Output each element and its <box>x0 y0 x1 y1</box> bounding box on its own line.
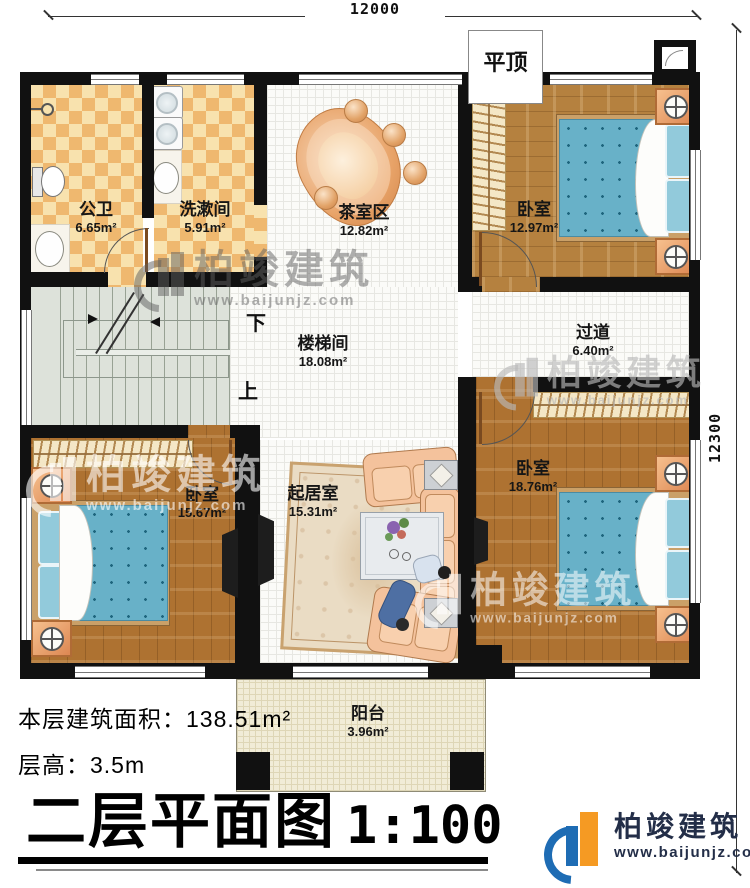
tea-stool-4 <box>314 186 338 210</box>
window-top-3 <box>299 74 462 85</box>
balcony-pillar-right <box>450 752 484 790</box>
flat-roof-box: 平顶 <box>468 30 543 104</box>
staircase <box>30 287 230 425</box>
room-label-qijushi: 起居室 15.31m² <box>288 484 339 519</box>
bed-br-blanket <box>635 492 669 606</box>
bed-tr-pillow-1 <box>665 124 692 178</box>
wall-bath-bottom-b <box>146 272 267 287</box>
bathroom-sink <box>35 231 64 267</box>
wall-lamp-icon <box>41 103 54 116</box>
window-right-1 <box>690 150 701 260</box>
company-logo-url: www.baijunjz.com <box>614 843 750 863</box>
room-label-guodao: 过道 6.40m² <box>572 323 613 358</box>
room-name: 卧室 <box>178 485 226 505</box>
dimension-tick <box>691 10 702 21</box>
balcony-pillar-left <box>236 752 270 790</box>
room-area: 18.08m² <box>298 354 349 370</box>
room-area: 15.67m² <box>178 505 226 521</box>
room-label-xishujian: 洗漱间 5.91m² <box>180 200 231 235</box>
room-name: 阳台 <box>347 704 388 724</box>
dimension-tick <box>43 10 54 21</box>
tea-stool-2 <box>382 123 406 147</box>
room-label-chashiqu: 茶室区 12.82m² <box>339 203 390 238</box>
dimension-width: 12000 <box>305 0 445 18</box>
dimension-line-right <box>736 30 737 873</box>
room-label-bedroom-bl: 卧室 15.67m² <box>178 485 226 520</box>
bed-tr-blanket <box>635 119 669 237</box>
bed-br-pillow-1 <box>665 498 692 548</box>
room-name: 过道 <box>572 323 613 343</box>
page-title: 二层平面图 <box>26 792 336 852</box>
page-scale: 1:100 <box>346 800 503 852</box>
room-name: 楼梯间 <box>298 334 349 354</box>
door-leaf-bedroom-tr <box>479 232 482 286</box>
wall-wash-tea-a <box>254 85 267 205</box>
threshold-bathroom <box>108 272 146 287</box>
wall-bedroombl-top-a <box>20 425 188 438</box>
room-area: 12.82m² <box>339 223 390 239</box>
tea-stool-3 <box>403 161 427 185</box>
side-table-1 <box>424 460 458 490</box>
room-area: 12.97m² <box>510 220 558 236</box>
room-area: 6.40m² <box>572 343 613 359</box>
room-area: 5.91m² <box>180 220 231 236</box>
window-top-1 <box>91 74 139 85</box>
wardrobe-br <box>533 392 690 418</box>
company-logo-brand: 柏竣建筑 <box>614 812 750 843</box>
wall-living-bedroombl <box>235 425 260 663</box>
tv-living <box>258 514 274 586</box>
stair-arrow-left-icon <box>150 317 160 327</box>
room-name: 公卫 <box>75 200 116 220</box>
wall-bath-mid <box>142 85 154 218</box>
room-area: 18.76m² <box>509 479 557 495</box>
wall-junction-br <box>476 645 502 663</box>
dimension-height: 12300 <box>706 388 724 488</box>
window-top-2 <box>167 74 244 85</box>
chimney-inner <box>662 47 688 69</box>
window-bottom-2 <box>515 666 650 678</box>
title-underline-thick <box>18 857 488 864</box>
threshold-bedroom-br <box>476 377 533 392</box>
bed-br <box>556 487 695 611</box>
title-underline-thin <box>36 869 488 871</box>
wall-living-bedroombr <box>458 377 476 663</box>
flat-roof-label: 平顶 <box>469 45 542 77</box>
bed-bl-blanket <box>59 505 93 621</box>
story-height-value: 3.5m <box>90 752 145 778</box>
bed-bl <box>31 500 170 626</box>
tv-bedroom-bl <box>222 528 238 598</box>
toilet-bowl <box>41 166 65 197</box>
wall-bedroombr-top <box>533 377 700 392</box>
room-label-loutijian: 楼梯间 18.08m² <box>298 334 349 369</box>
person-sitting-head <box>438 566 451 579</box>
bed-tr <box>556 114 695 242</box>
wall-bath-bottom-a <box>20 272 108 287</box>
nightstand-bl-2 <box>31 620 72 657</box>
room-label-bedroom-br: 卧室 18.76m² <box>509 459 557 494</box>
room-label-gongwei: 公卫 6.65m² <box>75 200 116 235</box>
stairs-down-label: 下 <box>246 307 266 336</box>
threshold-bedroom-bl <box>188 425 230 438</box>
company-logo: 柏竣建筑 www.baijunjz.com <box>546 812 750 876</box>
room-name: 洗漱间 <box>180 200 231 220</box>
window-left-2 <box>21 498 32 640</box>
wardrobe-tr <box>472 86 506 231</box>
window-bottom-1 <box>75 666 205 678</box>
room-name: 卧室 <box>509 459 557 479</box>
washroom-sink <box>153 162 179 194</box>
floor-area-line: 本层建筑面积：138.51m² <box>18 700 291 734</box>
floor-plan-page: 下 上 <box>0 0 750 888</box>
window-top-4 <box>550 74 652 85</box>
washing-machine-1 <box>151 86 183 119</box>
person-lying-head <box>396 618 409 631</box>
door-leaf-bedroom-br <box>479 392 482 444</box>
story-height-label: 层高： <box>18 752 90 778</box>
side-table-2 <box>424 598 458 628</box>
door-leaf-bathroom <box>145 228 148 272</box>
room-name: 起居室 <box>288 484 339 504</box>
balcony-sliding-door <box>293 666 428 678</box>
wardrobe-bl <box>33 440 193 468</box>
room-name: 茶室区 <box>339 203 390 223</box>
room-area: 3.96m² <box>347 724 388 740</box>
story-height-line: 层高：3.5m <box>18 746 145 780</box>
company-logo-icon <box>546 812 606 876</box>
window-left-1 <box>21 310 32 425</box>
wall-bedroomtr-bottom-b <box>540 277 700 292</box>
room-label-bedroom-tr: 卧室 12.97m² <box>510 200 558 235</box>
window-right-2 <box>690 440 701 603</box>
opening-washroom <box>254 205 267 257</box>
tea-stool-1 <box>344 99 368 123</box>
room-area: 6.65m² <box>75 220 116 236</box>
washing-machine-2 <box>151 117 183 150</box>
stairs-up-label: 上 <box>238 375 258 404</box>
room-area: 15.31m² <box>288 504 339 520</box>
door-leaf-bedroom-bl <box>229 440 232 484</box>
room-name: 卧室 <box>510 200 558 220</box>
tv-bedroom-br <box>474 517 488 565</box>
room-label-yangtai: 阳台 3.96m² <box>347 704 388 739</box>
nightstand-bl-1 <box>31 467 72 504</box>
bed-br-pillow-2 <box>665 550 692 600</box>
floor-area-label: 本层建筑面积： <box>18 706 186 732</box>
floor-area-value: 138.51m² <box>186 706 291 732</box>
bed-tr-pillow-2 <box>665 179 692 233</box>
stair-arrow-right-icon <box>88 314 98 324</box>
